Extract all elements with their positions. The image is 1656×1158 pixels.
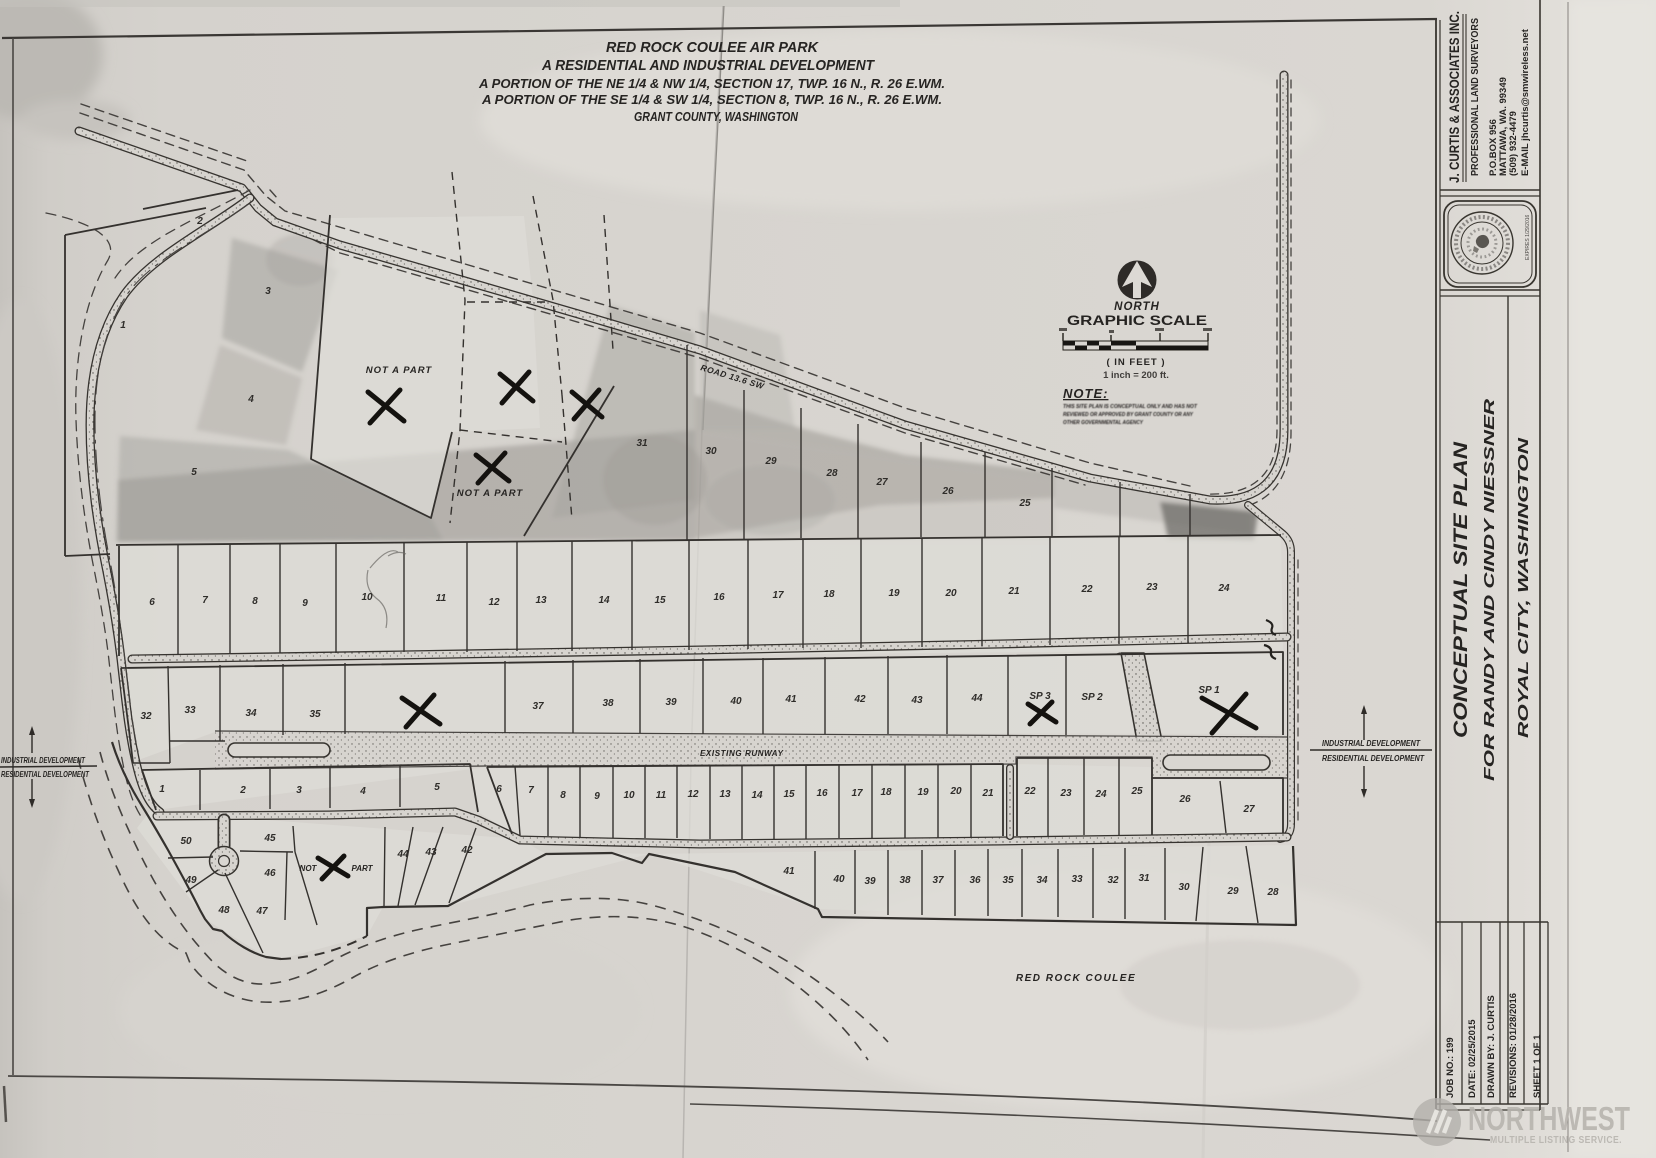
- svg-text:NOT: NOT: [300, 864, 318, 873]
- svg-text:15: 15: [783, 789, 795, 800]
- svg-text:19: 19: [917, 787, 929, 798]
- svg-text:41: 41: [784, 694, 797, 705]
- svg-text:33: 33: [184, 705, 196, 716]
- svg-text:30: 30: [1178, 882, 1190, 893]
- svg-text:3: 3: [296, 785, 302, 796]
- svg-text:NOTE:: NOTE:: [1063, 386, 1108, 401]
- svg-text:A PORTION OF THE SE 1/4 & SW 1: A PORTION OF THE SE 1/4 & SW 1/4, SECTIO…: [481, 93, 942, 107]
- svg-text:A RESIDENTIAL AND INDUSTRIAL D: A RESIDENTIAL AND INDUSTRIAL DEVELOPMENT: [541, 57, 876, 74]
- svg-text:14: 14: [751, 790, 763, 801]
- svg-text:37: 37: [532, 701, 544, 712]
- svg-text:THIS SITE PLAN IS CONCEPTUAL O: THIS SITE PLAN IS CONCEPTUAL ONLY AND HA…: [1063, 404, 1197, 410]
- svg-text:8: 8: [252, 596, 258, 607]
- svg-text:49: 49: [184, 875, 197, 886]
- svg-text:40: 40: [832, 874, 845, 885]
- svg-text:6: 6: [496, 784, 502, 795]
- svg-text:7: 7: [202, 595, 208, 606]
- svg-text:4: 4: [247, 394, 254, 405]
- svg-text:PROFESSIONAL LAND SURVEYORS: PROFESSIONAL LAND SURVEYORS: [1470, 18, 1481, 176]
- svg-text:26: 26: [941, 486, 954, 497]
- svg-text:18: 18: [880, 787, 892, 798]
- svg-text:NOT A PART: NOT A PART: [457, 488, 524, 499]
- svg-text:40: 40: [729, 696, 742, 707]
- svg-text:1: 1: [120, 320, 126, 331]
- svg-text:SP 1: SP 1: [1198, 685, 1220, 696]
- svg-text:INDUSTRIAL DEVELOPMENT: INDUSTRIAL DEVELOPMENT: [1, 756, 86, 765]
- svg-text:31: 31: [1138, 873, 1150, 884]
- svg-text:26: 26: [1178, 794, 1191, 805]
- svg-text:38: 38: [602, 698, 614, 709]
- svg-text:INDUSTRIAL DEVELOPMENT: INDUSTRIAL DEVELOPMENT: [1322, 739, 1421, 748]
- svg-text:NOT A PART: NOT A PART: [366, 365, 433, 376]
- svg-text:5: 5: [191, 467, 197, 478]
- svg-text:SP 3: SP 3: [1029, 691, 1051, 702]
- svg-text:43: 43: [424, 847, 437, 858]
- svg-text:35: 35: [309, 709, 321, 720]
- svg-text:47: 47: [255, 906, 268, 917]
- svg-text:E-MAIL jhcurtis@smwireless.net: E-MAIL jhcurtis@smwireless.net: [1520, 28, 1531, 176]
- svg-text:41: 41: [782, 866, 795, 877]
- svg-text:33: 33: [1071, 874, 1083, 885]
- svg-text:GRANT COUNTY, WASHINGTON: GRANT COUNTY, WASHINGTON: [634, 110, 799, 124]
- svg-text:32: 32: [140, 711, 152, 722]
- svg-text:ROYAL CITY, WASHINGTON: ROYAL CITY, WASHINGTON: [1515, 436, 1532, 738]
- svg-text:6: 6: [149, 597, 155, 608]
- svg-text:11: 11: [436, 593, 447, 604]
- svg-text:29: 29: [1226, 886, 1239, 897]
- svg-text:18: 18: [823, 589, 835, 600]
- svg-text:NORTH: NORTH: [1114, 301, 1160, 313]
- svg-text:NORTHWEST: NORTHWEST: [1468, 1100, 1630, 1137]
- svg-text:MULTIPLE LISTING SERVICE.: MULTIPLE LISTING SERVICE.: [1490, 1134, 1622, 1146]
- svg-text:20: 20: [949, 786, 962, 797]
- svg-text:34: 34: [245, 708, 257, 719]
- svg-text:46: 46: [263, 868, 276, 879]
- svg-text:JOB NO.: 199: JOB NO.: 199: [1445, 1037, 1456, 1098]
- svg-text:3: 3: [265, 286, 271, 297]
- svg-text:35: 35: [1002, 875, 1014, 886]
- svg-text:24: 24: [1217, 583, 1230, 594]
- svg-text:1: 1: [159, 784, 165, 795]
- svg-text:25: 25: [1130, 786, 1143, 797]
- svg-text:17: 17: [772, 590, 784, 601]
- svg-text:12: 12: [687, 789, 699, 800]
- svg-text:10: 10: [361, 592, 373, 603]
- svg-text:27: 27: [875, 477, 888, 488]
- svg-text:44: 44: [396, 849, 409, 860]
- svg-text:12: 12: [488, 597, 500, 608]
- svg-text:RESIDENTIAL DEVELOPMENT: RESIDENTIAL DEVELOPMENT: [1, 770, 90, 779]
- svg-text:RESIDENTIAL DEVELOPMENT: RESIDENTIAL DEVELOPMENT: [1322, 754, 1425, 763]
- svg-text:25: 25: [1018, 498, 1031, 509]
- svg-text:PART: PART: [351, 864, 373, 873]
- svg-text:SHEET 1 OF 1: SHEET 1 OF 1: [1532, 1034, 1543, 1098]
- svg-text:EXPIRES 1/29/2016: EXPIRES 1/29/2016: [1525, 214, 1531, 260]
- svg-text:17: 17: [851, 788, 863, 799]
- svg-text:( IN FEET ): ( IN FEET ): [1106, 357, 1165, 368]
- svg-text:OTHER GOVERNMENTAL AGENCY: OTHER GOVERNMENTAL AGENCY: [1063, 420, 1144, 426]
- svg-text:43: 43: [910, 695, 923, 706]
- svg-text:J. CURTIS & ASSOCIATES INC.: J. CURTIS & ASSOCIATES INC.: [1447, 11, 1462, 183]
- svg-text:14: 14: [598, 595, 610, 606]
- svg-text:8: 8: [560, 790, 566, 801]
- svg-text:16: 16: [713, 592, 725, 603]
- svg-text:24: 24: [1094, 789, 1107, 800]
- svg-text:50: 50: [180, 836, 192, 847]
- svg-text:15: 15: [654, 595, 666, 606]
- svg-text:42: 42: [460, 845, 473, 856]
- svg-text:37: 37: [932, 875, 944, 886]
- svg-text:EXISTING RUNWAY: EXISTING RUNWAY: [700, 749, 784, 758]
- svg-text:DATE: 02/25/2015: DATE: 02/25/2015: [1467, 1019, 1478, 1098]
- svg-text:4: 4: [359, 786, 366, 797]
- svg-text:20: 20: [944, 588, 957, 599]
- svg-text:34: 34: [1036, 875, 1048, 886]
- svg-text:22: 22: [1023, 786, 1036, 797]
- svg-text:28: 28: [1266, 887, 1279, 898]
- svg-text:32: 32: [1107, 875, 1119, 886]
- svg-text:CONCEPTUAL SITE PLAN: CONCEPTUAL SITE PLAN: [1451, 440, 1472, 738]
- svg-text:GRAPHIC SCALE: GRAPHIC SCALE: [1067, 313, 1207, 328]
- svg-text:11: 11: [656, 790, 667, 801]
- svg-text:DRAWN BY: J. CURTIS: DRAWN BY: J. CURTIS: [1486, 995, 1497, 1098]
- svg-text:13: 13: [719, 789, 731, 800]
- svg-text:A PORTION OF THE NE 1/4 & NW 1: A PORTION OF THE NE 1/4 & NW 1/4, SECTIO…: [478, 77, 945, 91]
- svg-text:23: 23: [1145, 582, 1158, 593]
- svg-text:44: 44: [970, 693, 983, 704]
- svg-text:42: 42: [853, 694, 866, 705]
- svg-text:7: 7: [528, 785, 534, 796]
- svg-text:29: 29: [764, 456, 777, 467]
- svg-text:5: 5: [434, 782, 440, 793]
- svg-text:38: 38: [899, 875, 911, 886]
- svg-text:10: 10: [623, 790, 635, 801]
- svg-text:48: 48: [217, 905, 230, 916]
- svg-text:2: 2: [196, 216, 203, 227]
- svg-text:REVISIONS: 01/28/2016: REVISIONS: 01/28/2016: [1508, 993, 1519, 1098]
- svg-text:SP 2: SP 2: [1081, 692, 1103, 703]
- svg-text:9: 9: [302, 598, 308, 609]
- svg-text:39: 39: [665, 697, 677, 708]
- svg-text:21: 21: [981, 788, 994, 799]
- svg-text:FOR RANDY AND CINDY NIESSNER: FOR RANDY AND CINDY NIESSNER: [1481, 399, 1498, 781]
- svg-text:31: 31: [636, 438, 648, 449]
- svg-text:1 inch = 200 ft.: 1 inch = 200 ft.: [1103, 370, 1169, 381]
- svg-text:(509) 932-4479: (509) 932-4479: [1508, 111, 1519, 176]
- svg-text:2: 2: [239, 785, 246, 796]
- svg-text:9: 9: [594, 791, 600, 802]
- svg-text:21: 21: [1007, 586, 1020, 597]
- svg-text:45: 45: [263, 833, 276, 844]
- svg-text:REVIEWED OR APPROVED BY GRANT: REVIEWED OR APPROVED BY GRANT COUNTY OR …: [1063, 412, 1194, 418]
- svg-text:16: 16: [816, 788, 828, 799]
- svg-text:19: 19: [888, 588, 900, 599]
- svg-text:23: 23: [1059, 788, 1072, 799]
- svg-text:39: 39: [864, 876, 876, 887]
- svg-text:28: 28: [825, 468, 838, 479]
- svg-text:22: 22: [1080, 584, 1093, 595]
- svg-text:RED ROCK COULEE: RED ROCK COULEE: [1016, 973, 1136, 984]
- svg-text:13: 13: [535, 595, 547, 606]
- svg-text:27: 27: [1242, 804, 1255, 815]
- svg-text:30: 30: [705, 446, 717, 457]
- svg-text:36: 36: [969, 875, 981, 886]
- svg-text:RED ROCK COULEE AIR PARK: RED ROCK COULEE AIR PARK: [606, 39, 819, 56]
